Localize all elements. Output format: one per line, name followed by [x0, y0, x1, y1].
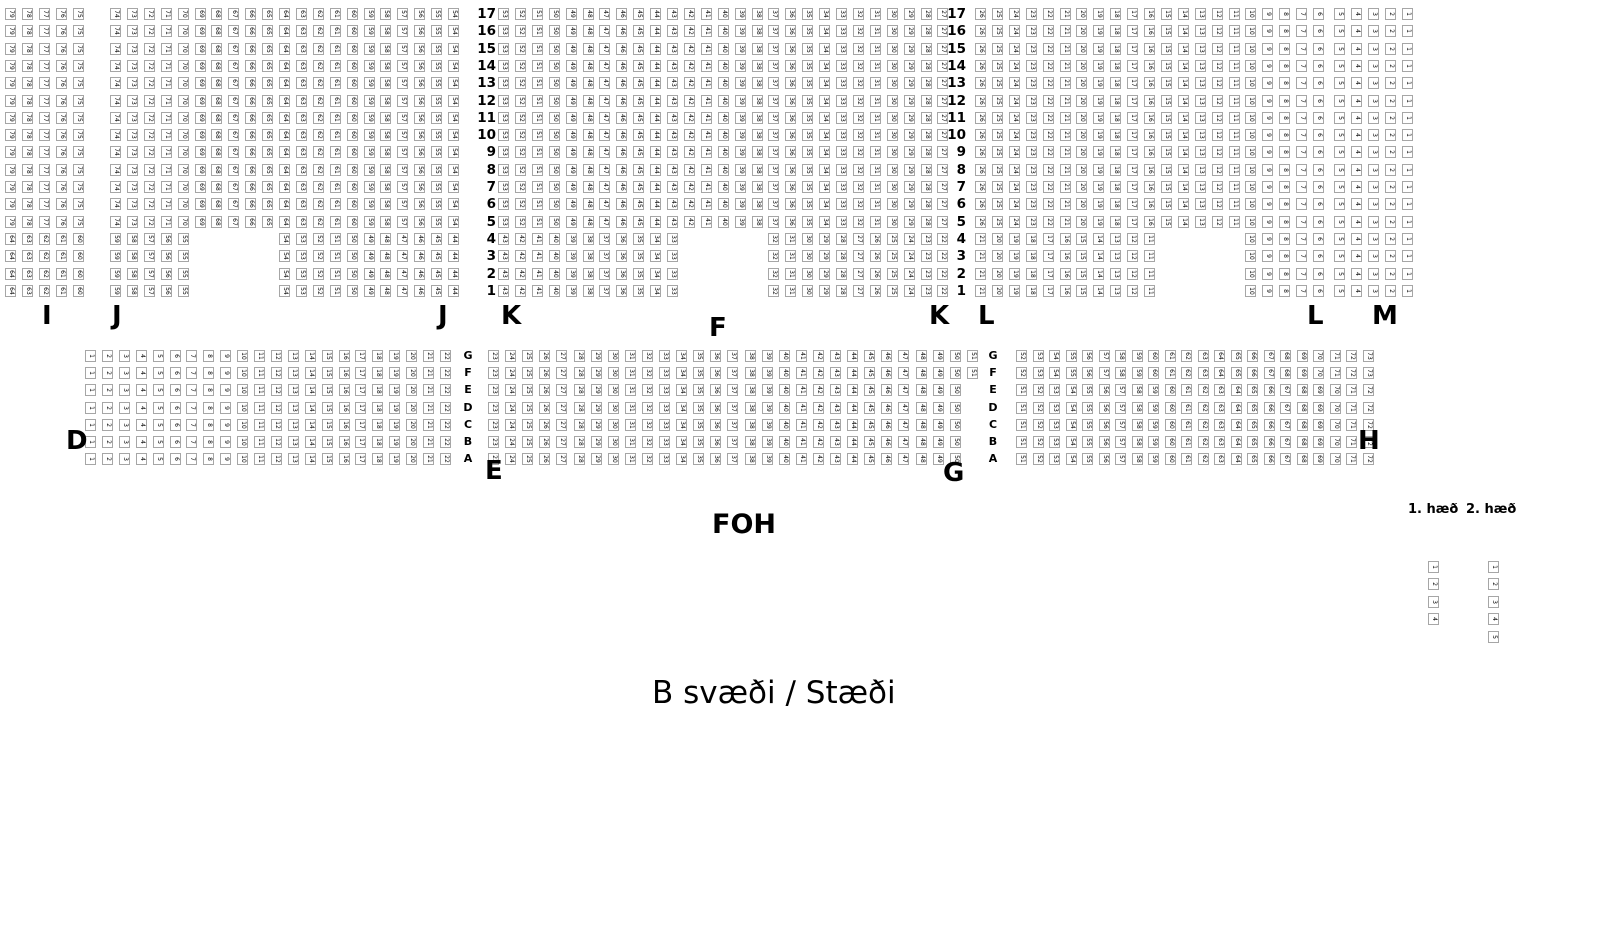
seat[interactable]: 76: [56, 43, 67, 55]
seat[interactable]: 57: [397, 77, 408, 89]
seat[interactable]: 64: [5, 233, 16, 245]
seat[interactable]: 19: [1093, 60, 1104, 72]
seat[interactable]: 48: [583, 8, 594, 20]
seat[interactable]: 36: [710, 436, 721, 448]
seat[interactable]: 22: [440, 419, 451, 431]
seat[interactable]: 3: [1368, 77, 1379, 89]
seat[interactable]: 40: [718, 8, 729, 20]
seat[interactable]: 40: [718, 164, 729, 176]
seat[interactable]: 37: [768, 181, 779, 193]
seat[interactable]: 62: [1198, 453, 1209, 465]
seat[interactable]: 34: [676, 384, 687, 396]
seat[interactable]: 53: [296, 268, 307, 280]
seat[interactable]: 78: [22, 198, 33, 210]
seat[interactable]: 16: [339, 402, 350, 414]
seat[interactable]: 18: [372, 402, 383, 414]
seat[interactable]: 25: [522, 384, 533, 396]
seat[interactable]: 58: [127, 285, 138, 297]
seat[interactable]: 76: [56, 8, 67, 20]
seat[interactable]: 77: [39, 60, 50, 72]
seat[interactable]: 13: [1195, 129, 1206, 141]
seat[interactable]: 27: [853, 233, 864, 245]
seat[interactable]: 1: [1402, 233, 1413, 245]
seat[interactable]: 1: [1402, 112, 1413, 124]
seat[interactable]: 70: [178, 25, 189, 37]
seat[interactable]: 47: [599, 43, 610, 55]
seat[interactable]: 3: [1368, 285, 1379, 297]
seat[interactable]: 56: [414, 95, 425, 107]
seat[interactable]: 1: [1428, 561, 1439, 573]
seat[interactable]: 10: [1245, 25, 1256, 37]
seat[interactable]: 27: [556, 350, 567, 362]
seat[interactable]: 69: [195, 129, 206, 141]
seat[interactable]: 37: [599, 285, 610, 297]
seat[interactable]: 43: [667, 164, 678, 176]
seat[interactable]: 73: [127, 95, 138, 107]
seat[interactable]: 51: [967, 367, 978, 379]
seat[interactable]: 38: [752, 60, 763, 72]
seat[interactable]: 68: [211, 129, 222, 141]
seat[interactable]: 58: [380, 216, 391, 228]
seat[interactable]: 23: [1026, 60, 1037, 72]
seat[interactable]: 49: [566, 216, 577, 228]
seat[interactable]: 32: [853, 129, 864, 141]
seat[interactable]: 58: [380, 43, 391, 55]
seat[interactable]: 19: [389, 350, 400, 362]
seat[interactable]: 47: [898, 436, 909, 448]
seat[interactable]: 2: [1385, 285, 1396, 297]
seat[interactable]: 44: [650, 181, 661, 193]
seat[interactable]: 34: [819, 164, 830, 176]
seat[interactable]: 70: [178, 216, 189, 228]
seat[interactable]: 60: [1165, 384, 1176, 396]
seat[interactable]: 41: [701, 181, 712, 193]
seat[interactable]: 70: [178, 95, 189, 107]
seat[interactable]: 59: [364, 77, 375, 89]
seat[interactable]: 54: [448, 8, 459, 20]
seat[interactable]: 72: [144, 129, 155, 141]
seat[interactable]: 64: [5, 285, 16, 297]
seat[interactable]: 37: [727, 419, 738, 431]
seat[interactable]: 36: [616, 268, 627, 280]
seat[interactable]: 40: [718, 43, 729, 55]
seat[interactable]: 33: [659, 402, 670, 414]
seat[interactable]: 30: [608, 419, 619, 431]
seat[interactable]: 66: [1264, 402, 1275, 414]
seat[interactable]: 66: [1264, 453, 1275, 465]
seat[interactable]: 25: [992, 43, 1003, 55]
seat[interactable]: 53: [498, 112, 509, 124]
seat[interactable]: 28: [921, 181, 932, 193]
seat[interactable]: 7: [1296, 8, 1307, 20]
seat[interactable]: 48: [380, 285, 391, 297]
seat[interactable]: 39: [762, 402, 773, 414]
seat[interactable]: 32: [853, 8, 864, 20]
seat[interactable]: 2: [1385, 129, 1396, 141]
seat[interactable]: 60: [347, 198, 358, 210]
seat[interactable]: 44: [847, 419, 858, 431]
seat[interactable]: 40: [549, 233, 560, 245]
seat[interactable]: 59: [364, 8, 375, 20]
seat[interactable]: 3: [1488, 596, 1499, 608]
seat[interactable]: 48: [380, 250, 391, 262]
seat[interactable]: 26: [975, 216, 986, 228]
seat[interactable]: 2: [1385, 95, 1396, 107]
seat[interactable]: 49: [364, 250, 375, 262]
seat[interactable]: 21: [1060, 198, 1071, 210]
seat[interactable]: 4: [1351, 95, 1362, 107]
seat[interactable]: 50: [549, 8, 560, 20]
seat[interactable]: 30: [802, 268, 813, 280]
seat[interactable]: 45: [431, 250, 442, 262]
seat[interactable]: 48: [583, 164, 594, 176]
seat[interactable]: 62: [313, 43, 324, 55]
seat[interactable]: 66: [245, 60, 256, 72]
seat[interactable]: 17: [1127, 95, 1138, 107]
seat[interactable]: 64: [5, 250, 16, 262]
seat[interactable]: 34: [676, 419, 687, 431]
seat[interactable]: 20: [1076, 112, 1087, 124]
seat[interactable]: 11: [1229, 8, 1240, 20]
seat[interactable]: 68: [211, 95, 222, 107]
seat[interactable]: 27: [556, 453, 567, 465]
seat[interactable]: 40: [718, 60, 729, 72]
seat[interactable]: 36: [710, 453, 721, 465]
seat[interactable]: 4: [1351, 181, 1362, 193]
seat[interactable]: 52: [1016, 367, 1027, 379]
seat[interactable]: 21: [1060, 60, 1071, 72]
seat[interactable]: 30: [887, 112, 898, 124]
seat[interactable]: 3: [119, 402, 130, 414]
seat[interactable]: 22: [1043, 164, 1054, 176]
seat[interactable]: 7: [186, 350, 197, 362]
seat[interactable]: 30: [887, 129, 898, 141]
seat[interactable]: 74: [110, 112, 121, 124]
seat[interactable]: 21: [975, 268, 986, 280]
seat[interactable]: 51: [532, 43, 543, 55]
seat[interactable]: 64: [279, 216, 290, 228]
seat[interactable]: 71: [1346, 402, 1357, 414]
seat[interactable]: 36: [785, 146, 796, 158]
seat[interactable]: 62: [313, 112, 324, 124]
seat[interactable]: 61: [330, 60, 341, 72]
seat[interactable]: 7: [1296, 77, 1307, 89]
seat[interactable]: 16: [1060, 250, 1071, 262]
seat[interactable]: 73: [127, 216, 138, 228]
seat[interactable]: 26: [870, 285, 881, 297]
seat[interactable]: 28: [921, 112, 932, 124]
seat[interactable]: 78: [22, 146, 33, 158]
seat[interactable]: 37: [599, 250, 610, 262]
seat[interactable]: 24: [505, 384, 516, 396]
seat[interactable]: 12: [1212, 181, 1223, 193]
seat[interactable]: 14: [305, 384, 316, 396]
seat[interactable]: 21: [423, 453, 434, 465]
seat[interactable]: 62: [1198, 419, 1209, 431]
seat[interactable]: 29: [591, 453, 602, 465]
seat[interactable]: 52: [515, 60, 526, 72]
seat[interactable]: 1: [1402, 181, 1413, 193]
seat[interactable]: 57: [397, 129, 408, 141]
seat[interactable]: 36: [785, 60, 796, 72]
seat[interactable]: 38: [752, 198, 763, 210]
seat[interactable]: 55: [1082, 419, 1093, 431]
seat[interactable]: 1: [1402, 198, 1413, 210]
seat[interactable]: 66: [245, 25, 256, 37]
seat[interactable]: 68: [211, 216, 222, 228]
seat[interactable]: 31: [870, 181, 881, 193]
seat[interactable]: 64: [279, 25, 290, 37]
seat[interactable]: 58: [127, 250, 138, 262]
seat[interactable]: 26: [870, 250, 881, 262]
seat[interactable]: 24: [904, 233, 915, 245]
seat[interactable]: 14: [1178, 43, 1189, 55]
seat[interactable]: 54: [448, 146, 459, 158]
seat[interactable]: 51: [1016, 453, 1027, 465]
seat[interactable]: 12: [1127, 268, 1138, 280]
seat[interactable]: 29: [904, 77, 915, 89]
seat[interactable]: 25: [522, 419, 533, 431]
seat[interactable]: 43: [830, 367, 841, 379]
seat[interactable]: 26: [975, 129, 986, 141]
seat[interactable]: 56: [1099, 419, 1110, 431]
seat[interactable]: 44: [448, 268, 459, 280]
seat[interactable]: 57: [144, 250, 155, 262]
seat[interactable]: 35: [802, 129, 813, 141]
seat[interactable]: 34: [650, 285, 661, 297]
seat[interactable]: 22: [1043, 25, 1054, 37]
seat[interactable]: 59: [1148, 419, 1159, 431]
seat[interactable]: 23: [1026, 164, 1037, 176]
seat[interactable]: 50: [549, 198, 560, 210]
seat[interactable]: 33: [659, 453, 670, 465]
seat[interactable]: 25: [992, 146, 1003, 158]
seat[interactable]: 76: [56, 146, 67, 158]
seat[interactable]: 57: [397, 164, 408, 176]
seat[interactable]: 26: [975, 198, 986, 210]
seat[interactable]: 22: [1043, 181, 1054, 193]
seat[interactable]: 68: [1280, 367, 1291, 379]
seat[interactable]: 5: [1334, 216, 1345, 228]
seat[interactable]: 64: [279, 198, 290, 210]
seat[interactable]: 21: [975, 285, 986, 297]
seat[interactable]: 40: [718, 181, 729, 193]
seat[interactable]: 2: [102, 419, 113, 431]
seat[interactable]: 12: [271, 419, 282, 431]
seat[interactable]: 57: [397, 112, 408, 124]
seat[interactable]: 11: [254, 453, 265, 465]
seat[interactable]: 10: [237, 350, 248, 362]
seat[interactable]: 43: [667, 146, 678, 158]
seat[interactable]: 33: [659, 384, 670, 396]
seat[interactable]: 12: [1127, 250, 1138, 262]
seat[interactable]: 41: [701, 164, 712, 176]
seat[interactable]: 23: [1026, 95, 1037, 107]
seat[interactable]: 7: [1296, 181, 1307, 193]
seat[interactable]: 20: [992, 285, 1003, 297]
seat[interactable]: 62: [313, 129, 324, 141]
seat[interactable]: 56: [161, 285, 172, 297]
seat[interactable]: 42: [684, 112, 695, 124]
seat[interactable]: 74: [110, 43, 121, 55]
seat[interactable]: 39: [735, 77, 746, 89]
seat[interactable]: 19: [1093, 198, 1104, 210]
seat[interactable]: 34: [676, 453, 687, 465]
seat[interactable]: 20: [1076, 198, 1087, 210]
seat[interactable]: 8: [203, 436, 214, 448]
seat[interactable]: 4: [1351, 112, 1362, 124]
seat[interactable]: 25: [992, 129, 1003, 141]
seat[interactable]: 36: [785, 129, 796, 141]
seat[interactable]: 25: [522, 402, 533, 414]
seat[interactable]: 69: [195, 198, 206, 210]
seat[interactable]: 76: [56, 164, 67, 176]
seat[interactable]: 34: [650, 268, 661, 280]
seat[interactable]: 7: [1296, 112, 1307, 124]
seat[interactable]: 25: [522, 350, 533, 362]
seat[interactable]: 9: [1262, 77, 1273, 89]
seat[interactable]: 49: [566, 77, 577, 89]
seat[interactable]: 53: [1033, 350, 1044, 362]
seat[interactable]: 60: [1165, 419, 1176, 431]
seat[interactable]: 28: [574, 384, 585, 396]
seat[interactable]: 17: [1043, 233, 1054, 245]
seat[interactable]: 8: [1279, 268, 1290, 280]
seat[interactable]: 42: [515, 233, 526, 245]
seat[interactable]: 9: [1262, 146, 1273, 158]
seat[interactable]: 77: [39, 112, 50, 124]
seat[interactable]: 22: [1043, 129, 1054, 141]
seat[interactable]: 40: [718, 146, 729, 158]
seat[interactable]: 15: [1161, 146, 1172, 158]
seat[interactable]: 35: [802, 112, 813, 124]
seat[interactable]: 52: [515, 112, 526, 124]
seat[interactable]: 51: [1016, 419, 1027, 431]
seat[interactable]: 14: [305, 419, 316, 431]
seat[interactable]: 19: [1093, 164, 1104, 176]
seat[interactable]: 68: [211, 112, 222, 124]
seat[interactable]: 54: [279, 285, 290, 297]
seat[interactable]: 52: [515, 43, 526, 55]
seat[interactable]: 79: [5, 146, 16, 158]
seat[interactable]: 52: [313, 233, 324, 245]
seat[interactable]: 47: [599, 112, 610, 124]
seat[interactable]: 62: [313, 95, 324, 107]
seat[interactable]: 51: [532, 129, 543, 141]
seat[interactable]: 8: [1279, 60, 1290, 72]
seat[interactable]: 72: [1363, 402, 1374, 414]
seat[interactable]: 23: [921, 233, 932, 245]
seat[interactable]: 37: [768, 216, 779, 228]
seat[interactable]: 37: [768, 146, 779, 158]
seat[interactable]: 25: [992, 25, 1003, 37]
seat[interactable]: 35: [633, 233, 644, 245]
seat[interactable]: 9: [1262, 164, 1273, 176]
seat[interactable]: 67: [228, 146, 239, 158]
seat[interactable]: 65: [262, 25, 273, 37]
seat[interactable]: 37: [768, 129, 779, 141]
seat[interactable]: 67: [1280, 402, 1291, 414]
seat[interactable]: 48: [916, 436, 927, 448]
seat[interactable]: 18: [1110, 129, 1121, 141]
seat[interactable]: 28: [921, 198, 932, 210]
seat[interactable]: 24: [1009, 146, 1020, 158]
seat[interactable]: 6: [1313, 268, 1324, 280]
seat[interactable]: 34: [819, 112, 830, 124]
seat[interactable]: 64: [279, 43, 290, 55]
seat[interactable]: 19: [389, 367, 400, 379]
seat[interactable]: 20: [1076, 216, 1087, 228]
seat[interactable]: 65: [262, 8, 273, 20]
seat[interactable]: 6: [1313, 95, 1324, 107]
seat[interactable]: 50: [549, 216, 560, 228]
seat[interactable]: 63: [1214, 419, 1225, 431]
seat[interactable]: 70: [1330, 453, 1341, 465]
seat[interactable]: 14: [1178, 8, 1189, 20]
seat[interactable]: 25: [522, 453, 533, 465]
seat[interactable]: 61: [330, 164, 341, 176]
seat[interactable]: 66: [245, 129, 256, 141]
seat[interactable]: 79: [5, 43, 16, 55]
seat[interactable]: 58: [380, 181, 391, 193]
seat[interactable]: 74: [110, 146, 121, 158]
seat[interactable]: 33: [836, 198, 847, 210]
seat[interactable]: 45: [431, 268, 442, 280]
seat[interactable]: 26: [975, 112, 986, 124]
seat[interactable]: 9: [220, 419, 231, 431]
seat[interactable]: 20: [992, 268, 1003, 280]
seat[interactable]: 5: [1334, 95, 1345, 107]
seat[interactable]: 6: [1313, 112, 1324, 124]
seat[interactable]: 8: [203, 419, 214, 431]
seat[interactable]: 58: [380, 129, 391, 141]
seat[interactable]: 20: [1076, 43, 1087, 55]
seat[interactable]: 46: [881, 402, 892, 414]
seat[interactable]: 13: [288, 367, 299, 379]
seat[interactable]: 50: [549, 60, 560, 72]
seat[interactable]: 2: [102, 402, 113, 414]
seat[interactable]: 2: [1385, 60, 1396, 72]
seat[interactable]: 25: [992, 216, 1003, 228]
seat[interactable]: 28: [574, 367, 585, 379]
seat[interactable]: 41: [701, 77, 712, 89]
seat[interactable]: 66: [245, 198, 256, 210]
seat[interactable]: 41: [796, 367, 807, 379]
seat[interactable]: 60: [347, 164, 358, 176]
seat[interactable]: 8: [1279, 8, 1290, 20]
seat[interactable]: 56: [414, 60, 425, 72]
seat[interactable]: 72: [1346, 367, 1357, 379]
seat[interactable]: 18: [372, 367, 383, 379]
seat[interactable]: 41: [532, 285, 543, 297]
seat[interactable]: 77: [39, 181, 50, 193]
seat[interactable]: 46: [414, 250, 425, 262]
seat[interactable]: 7: [186, 419, 197, 431]
seat[interactable]: 31: [870, 129, 881, 141]
seat[interactable]: 28: [574, 436, 585, 448]
seat[interactable]: 29: [904, 60, 915, 72]
seat[interactable]: 8: [1279, 250, 1290, 262]
seat[interactable]: 43: [830, 402, 841, 414]
seat[interactable]: 21: [423, 350, 434, 362]
seat[interactable]: 37: [727, 367, 738, 379]
seat[interactable]: 63: [1214, 384, 1225, 396]
seat[interactable]: 20: [1076, 181, 1087, 193]
seat[interactable]: 78: [22, 43, 33, 55]
seat[interactable]: 13: [1195, 43, 1206, 55]
seat[interactable]: 2: [1385, 8, 1396, 20]
seat[interactable]: 1: [85, 350, 96, 362]
